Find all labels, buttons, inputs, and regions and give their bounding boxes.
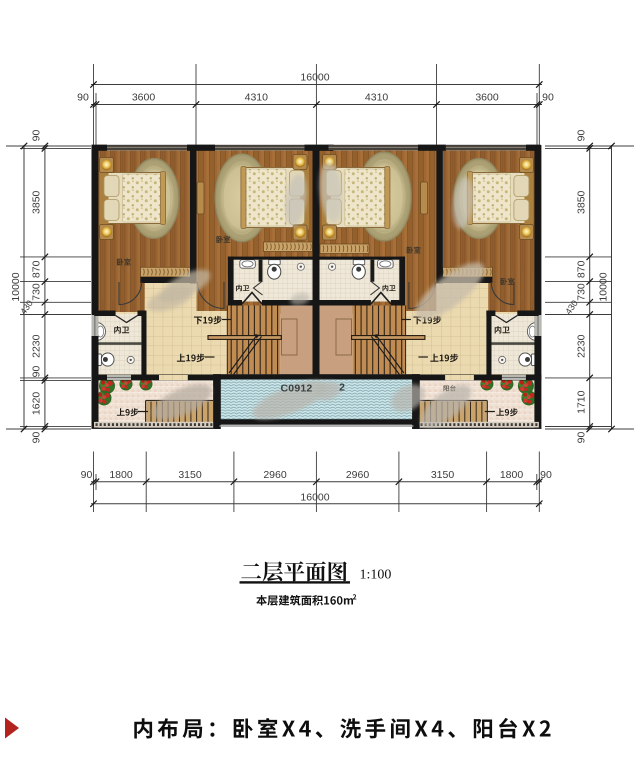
svg-text:90: 90	[575, 130, 587, 142]
svg-text:90: 90	[540, 469, 552, 481]
svg-text:16000: 16000	[300, 491, 329, 503]
svg-text:3600: 3600	[475, 92, 499, 104]
svg-text:4310: 4310	[365, 92, 389, 104]
svg-text:90: 90	[81, 469, 93, 481]
svg-text:3600: 3600	[132, 92, 156, 104]
svg-text:90: 90	[542, 92, 554, 104]
svg-text:C0912: C0912	[281, 383, 313, 395]
svg-text:730: 730	[30, 283, 42, 301]
svg-text:2960: 2960	[263, 469, 287, 481]
svg-text:4310: 4310	[245, 92, 269, 104]
svg-text:10000: 10000	[597, 272, 609, 301]
svg-text:2230: 2230	[575, 334, 587, 358]
svg-text:2: 2	[339, 382, 345, 394]
svg-text:90: 90	[30, 432, 42, 444]
svg-text:3850: 3850	[30, 190, 42, 214]
svg-text:1620: 1620	[30, 392, 42, 416]
svg-text:3150: 3150	[431, 469, 455, 481]
svg-text:2230: 2230	[30, 334, 42, 358]
svg-text:3150: 3150	[178, 469, 202, 481]
svg-text:3850: 3850	[575, 190, 587, 214]
svg-text:90: 90	[30, 130, 42, 142]
svg-text:10000: 10000	[10, 272, 22, 301]
svg-text:90: 90	[30, 366, 42, 378]
svg-text:1800: 1800	[500, 469, 524, 481]
svg-text:1800: 1800	[109, 469, 133, 481]
svg-text:1:100: 1:100	[360, 568, 392, 583]
svg-text:870: 870	[30, 260, 42, 278]
svg-text:1710: 1710	[575, 390, 587, 414]
svg-text:16000: 16000	[300, 72, 329, 84]
svg-text:870: 870	[575, 260, 587, 278]
svg-text:730: 730	[575, 283, 587, 301]
svg-text:2960: 2960	[346, 469, 370, 481]
svg-text:90: 90	[77, 92, 89, 104]
svg-text:90: 90	[575, 432, 587, 444]
